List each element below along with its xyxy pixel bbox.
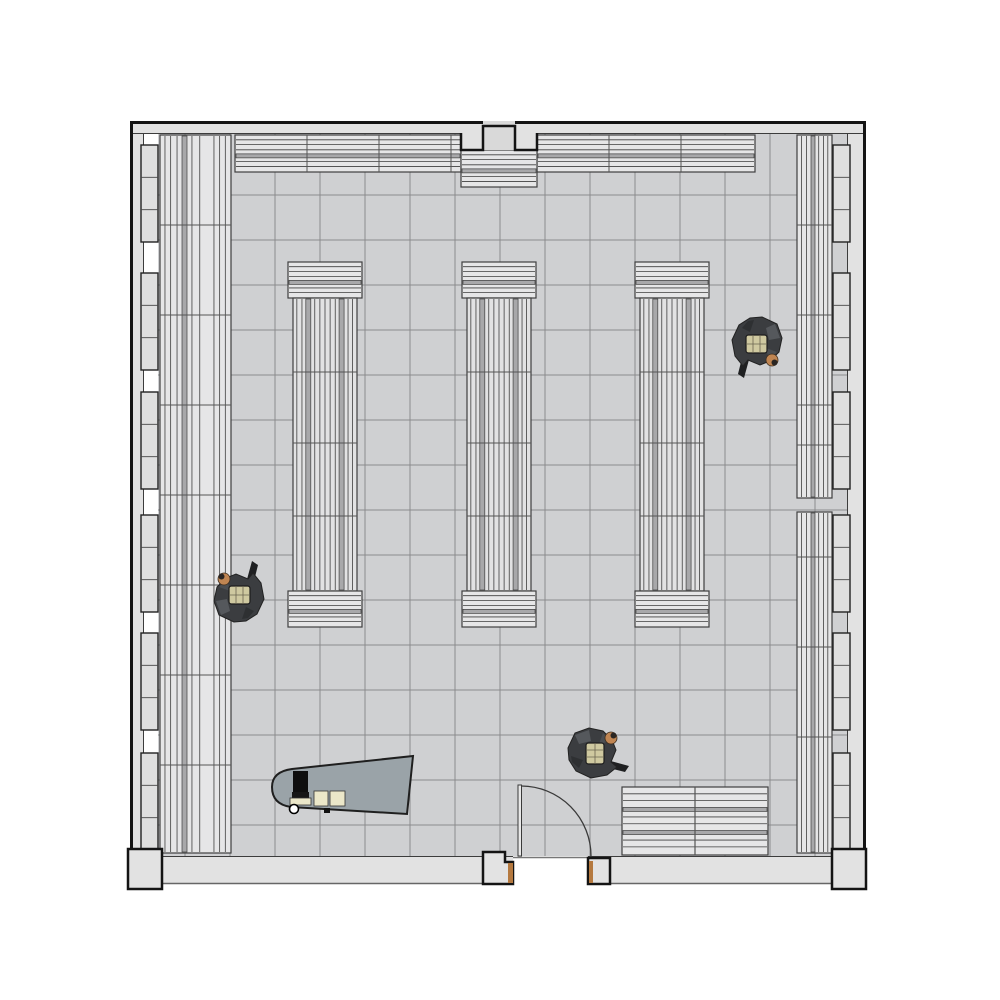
floor-plan-drawing xyxy=(0,0,1000,1000)
wall-band xyxy=(588,856,852,884)
desk-monitor-base xyxy=(292,792,309,798)
wall-pilaster xyxy=(141,392,158,489)
wall-pilaster xyxy=(833,515,850,612)
gondola-shelf-column xyxy=(288,262,362,627)
door-leaf xyxy=(518,785,522,856)
desk-item xyxy=(324,808,330,813)
wall-pilaster xyxy=(141,145,158,242)
wall-pilaster xyxy=(141,753,158,850)
wall-corner-block xyxy=(128,849,162,889)
wall-pilaster xyxy=(833,633,850,730)
desk-monitor xyxy=(293,771,308,792)
gondola-shelf-column xyxy=(462,262,536,627)
wall-pilaster xyxy=(833,753,850,850)
door-frame-strip xyxy=(589,861,593,883)
wall-corner-block xyxy=(832,849,866,889)
desk-paper xyxy=(314,791,328,806)
desk-cup xyxy=(290,805,299,814)
wall-band xyxy=(146,856,513,884)
wall-pilaster xyxy=(833,392,850,489)
desk-paper xyxy=(330,791,345,806)
wall-pilaster xyxy=(141,633,158,730)
floor-plan-page xyxy=(0,0,1000,1000)
wall-pilaster xyxy=(141,273,158,370)
wall-pilaster xyxy=(833,273,850,370)
gondola-shelves xyxy=(288,262,709,627)
gondola-shelf-column xyxy=(635,262,709,627)
door-frame-strip xyxy=(508,863,513,883)
wall-pilaster xyxy=(141,515,158,612)
wall-pilaster xyxy=(833,145,850,242)
